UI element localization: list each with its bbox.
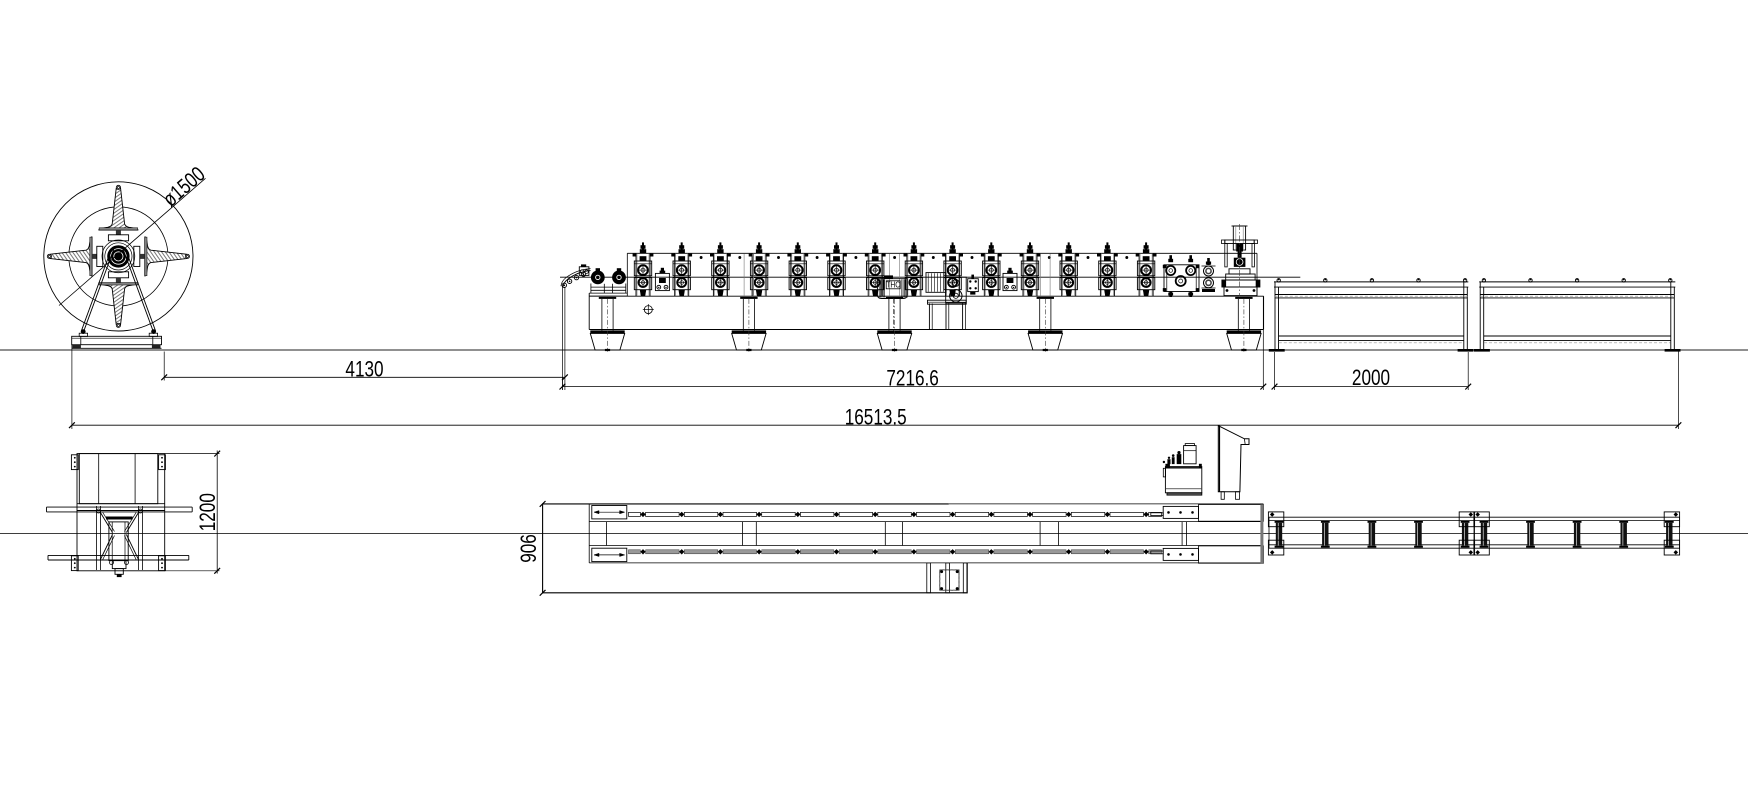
svg-text:THC: THC [886,280,900,290]
svg-text:7216.6: 7216.6 [886,367,938,392]
svg-text:1200: 1200 [196,493,221,531]
svg-text:4130: 4130 [345,357,383,382]
svg-text:16513.5: 16513.5 [845,405,907,430]
svg-text:906: 906 [517,534,542,563]
svg-text:2000: 2000 [1352,366,1390,391]
